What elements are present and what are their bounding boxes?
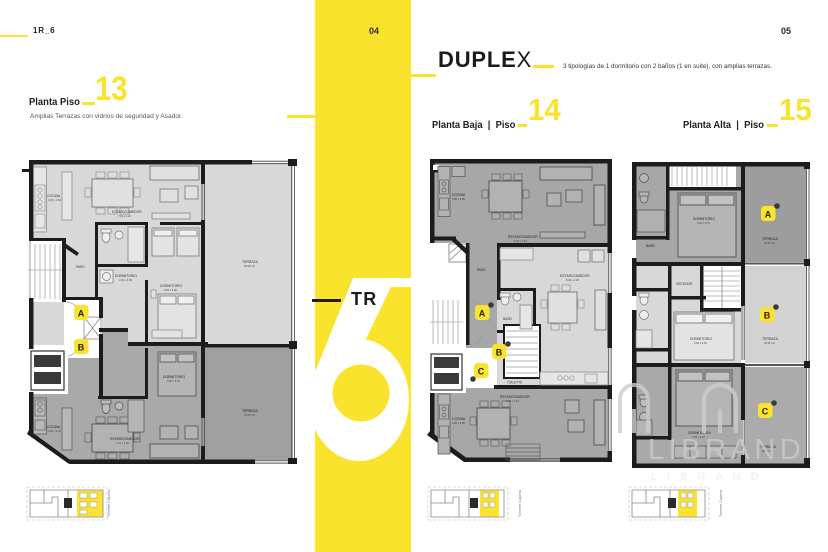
svg-text:Torrente Caprera: Torrente Caprera: [107, 490, 111, 517]
svg-text:Torrente Caprera: Torrente Caprera: [719, 490, 723, 517]
svg-text:Torrente Caprera: Torrente Caprera: [518, 490, 522, 517]
